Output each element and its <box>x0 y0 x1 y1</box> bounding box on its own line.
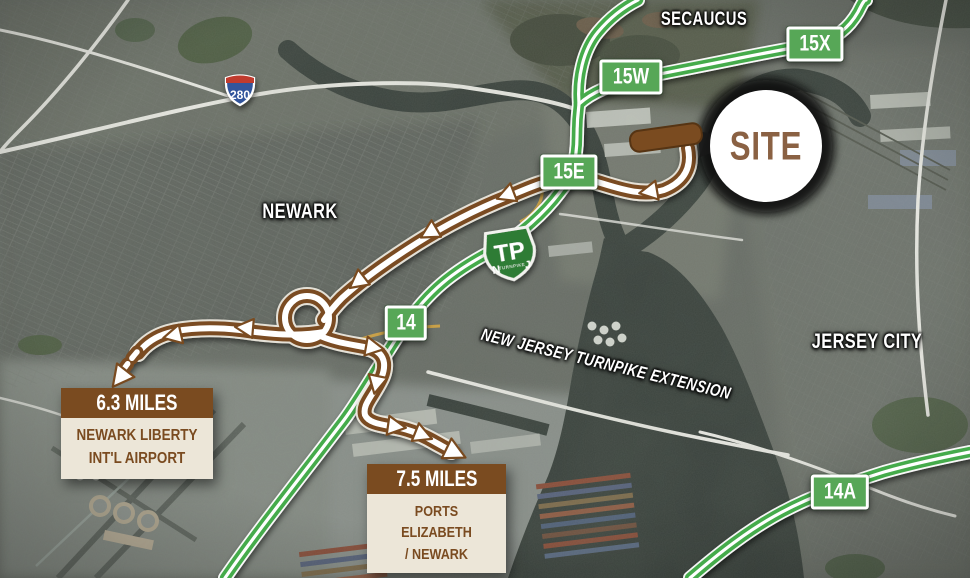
callout-airport-line2: INT'L AIRPORT <box>89 450 186 467</box>
callout-airport-distance-text: 6.3 MILES <box>96 391 177 414</box>
region-label-jersey-city-text: JERSEY CITY <box>812 330 923 354</box>
region-label-newark-text: NEWARK <box>262 200 337 224</box>
exit-badge-15x: 15X <box>786 27 843 62</box>
exit-badge-15e-text: 15E <box>553 161 584 183</box>
exit-badge-15w-text: 15W <box>613 66 649 88</box>
exit-badge-14: 14 <box>385 306 427 341</box>
callout-ports-distance-text: 7.5 MILES <box>396 467 477 490</box>
region-label-secaucus-text: SECAUCUS <box>661 9 747 31</box>
interstate-280-shield: 280 <box>226 76 254 106</box>
callout-ports-destination: PORTS ELIZABETH / NEWARK <box>367 494 506 573</box>
callout-airport-line1: NEWARK LIBERTY <box>77 427 198 444</box>
exit-badge-15x-text: 15X <box>799 33 830 55</box>
exit-badge-14-text: 14 <box>396 312 416 334</box>
region-label-secaucus: SECAUCUS <box>649 9 760 31</box>
callout-ports-line1: PORTS ELIZABETH <box>401 503 472 541</box>
callout-ports-destination-text: PORTS ELIZABETH / NEWARK <box>381 501 491 565</box>
exit-badge-15w: 15W <box>599 60 662 95</box>
region-label-jersey-city: JERSEY CITY <box>796 330 938 354</box>
callout-ports-line2: / NEWARK <box>405 546 468 563</box>
site-marker-label: SITE <box>720 125 813 170</box>
interstate-number: 280 <box>230 88 250 102</box>
exit-badge-14a: 14A <box>811 475 869 510</box>
exit-badge-15e: 15E <box>540 155 597 190</box>
callout-airport-distance: 6.3 MILES <box>61 388 213 418</box>
callout-ports-distance: 7.5 MILES <box>367 464 506 494</box>
region-label-newark: NEWARK <box>252 200 348 224</box>
exit-badge-14a-text: 14A <box>824 481 856 503</box>
map-canvas: 280 TP N J TURNPIKE SECAUCUS NEWARK JERS… <box>0 0 970 578</box>
callout-airport-destination-text: NEWARK LIBERTY INT'L AIRPORT <box>77 425 198 470</box>
callout-airport-destination: NEWARK LIBERTY INT'L AIRPORT <box>61 418 213 478</box>
site-marker-label-text: SITE <box>730 125 802 170</box>
callout-ports: 7.5 MILES PORTS ELIZABETH / NEWARK <box>367 464 506 573</box>
callout-airport: 6.3 MILES NEWARK LIBERTY INT'L AIRPORT <box>61 388 213 479</box>
